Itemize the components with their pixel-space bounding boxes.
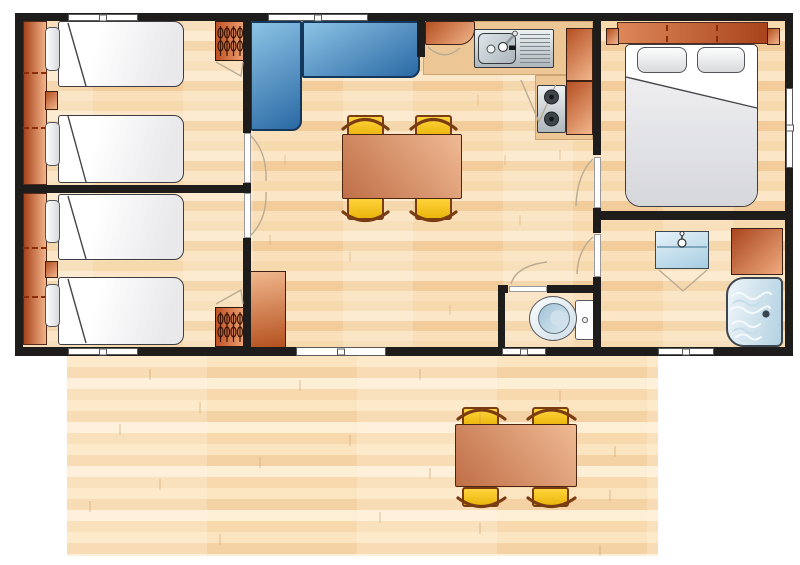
window-bathroom	[658, 348, 714, 355]
pillow	[45, 122, 60, 166]
window-bedroom1	[68, 14, 138, 21]
dining-chair	[347, 196, 384, 220]
pillow	[697, 47, 745, 73]
bedroom2-wardrobe	[215, 307, 244, 347]
bedroom1-headboard	[23, 21, 47, 185]
wall-between-bedrooms	[23, 185, 251, 193]
corner-sofa-back	[302, 21, 420, 78]
washbasin-edge	[657, 246, 707, 248]
headboard-divider	[23, 296, 47, 298]
corner-shower	[726, 277, 783, 347]
door-leaf-bedroom2	[244, 193, 251, 238]
wall-bedrooms-living	[243, 238, 251, 347]
wall-master-bathroom	[598, 211, 785, 220]
entrance-patio-door	[296, 347, 386, 356]
wall-kitchen-stub	[417, 21, 425, 57]
pillow	[637, 47, 687, 73]
toilet-bowl-water	[550, 310, 567, 326]
master-headboard-wing	[767, 28, 780, 45]
window-bedroom2	[68, 348, 138, 355]
bedroom2-bed-b	[58, 277, 184, 345]
headboard-divider	[716, 25, 718, 42]
door-leaf-bathroom	[594, 234, 601, 277]
corner-sofa-chaise	[250, 21, 302, 131]
pillow	[45, 27, 60, 71]
bedroom1-nightstand	[45, 91, 58, 110]
window-wc	[502, 348, 546, 355]
pillow	[45, 200, 60, 243]
sink-bowl	[478, 33, 516, 64]
bedroom2-bed-a	[58, 194, 184, 260]
wall-bedrooms-living	[243, 21, 251, 133]
wall-wc-top	[547, 285, 601, 293]
wall-exterior-right	[785, 13, 793, 356]
headboard-divider	[23, 127, 47, 129]
dining-table	[342, 134, 462, 199]
terrace-chair	[462, 487, 499, 507]
door-leaf-master	[594, 157, 601, 208]
door-leaf-wc	[509, 286, 547, 292]
master-headboard	[617, 22, 768, 44]
entrance-cabinet	[249, 271, 286, 348]
headboard-divider	[23, 247, 47, 249]
wall-kitchen-master	[593, 21, 601, 155]
dining-chair	[415, 196, 452, 220]
sink-drainer	[520, 34, 550, 63]
window-master	[786, 88, 793, 168]
bedroom1-wardrobe	[215, 21, 244, 61]
kitchen-corner-cabinet	[425, 21, 475, 45]
bedroom2-nightstand	[45, 261, 58, 278]
bathroom-cabinet	[731, 228, 783, 275]
kitchen-tall-cabinet-bottom	[566, 81, 593, 135]
headboard-divider	[23, 72, 47, 74]
wall-wc-left	[498, 285, 505, 347]
toilet-cistern	[575, 300, 595, 340]
bedroom1-bed-b	[58, 115, 184, 183]
washbasin	[655, 231, 709, 269]
door-leaf-bedroom1	[244, 133, 251, 183]
kitchen-tall-cabinet-top	[566, 28, 593, 81]
floor-plan	[0, 0, 800, 565]
window-living	[268, 14, 368, 21]
master-headboard-wing	[606, 28, 619, 45]
pillow	[45, 284, 60, 327]
wall-exterior-left	[15, 13, 23, 356]
bedroom2-headboard	[23, 193, 47, 345]
headboard-divider	[666, 25, 668, 42]
bedroom1-bed-a	[58, 21, 184, 87]
hob-two-burner	[537, 85, 566, 133]
terrace-chair	[532, 487, 569, 507]
terrace-table	[455, 424, 577, 487]
